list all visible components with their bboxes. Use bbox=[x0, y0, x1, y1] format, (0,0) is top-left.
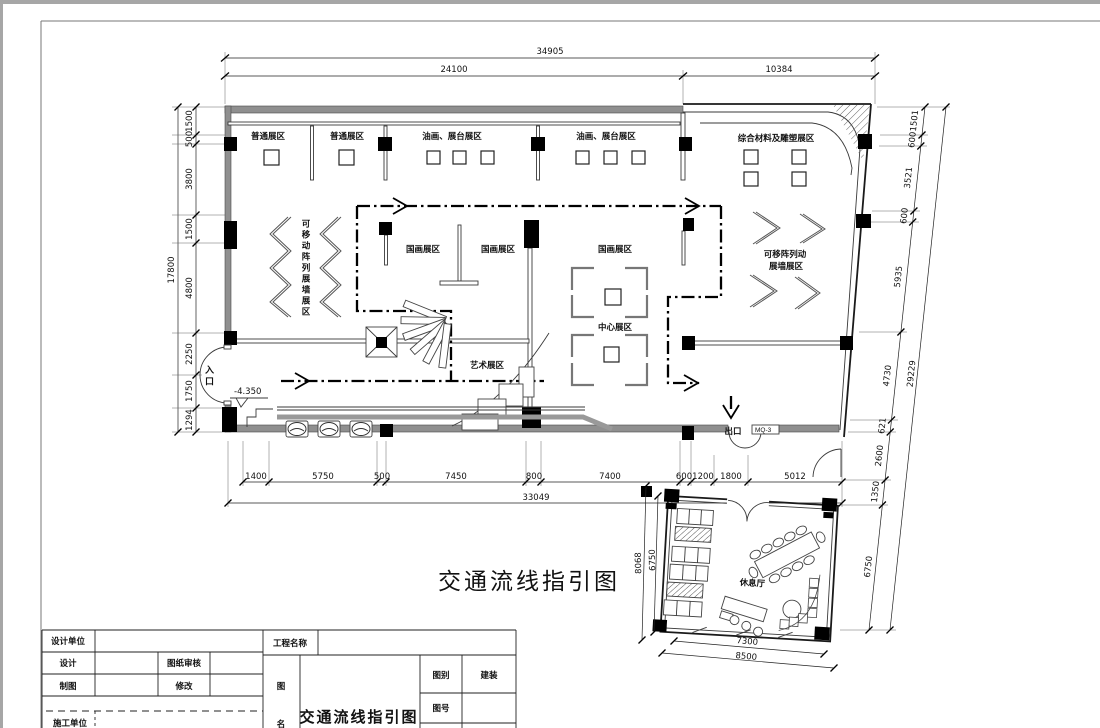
svg-text:621: 621 bbox=[877, 417, 889, 434]
svg-text:4800: 4800 bbox=[185, 277, 195, 299]
curtain-wall-tag: MQ-3 bbox=[755, 427, 772, 434]
svg-text:3521: 3521 bbox=[903, 167, 915, 190]
svg-text:5012: 5012 bbox=[784, 472, 806, 482]
room-label-lounge: 休息厅 bbox=[738, 577, 766, 589]
titleblock-category-label: 图别 bbox=[432, 670, 449, 680]
svg-text:7300: 7300 bbox=[736, 636, 758, 648]
titleblock-design: 设计 bbox=[59, 658, 77, 668]
titleblock-drawing-name-label: 图 bbox=[277, 681, 286, 691]
room-label-oil2: 油画、展台展区 bbox=[576, 131, 636, 141]
svg-text:6750: 6750 bbox=[648, 549, 658, 571]
titleblock-drawing-name-label: 名 bbox=[277, 719, 286, 728]
room-label-movable-right: 展墙展区 bbox=[768, 261, 804, 271]
room-label-guohua2: 国画展区 bbox=[481, 244, 516, 254]
titleblock-project-name: 工程名称 bbox=[273, 638, 308, 648]
drawing-sheet: 34905 24100 10384 17800 1500 500 3800 15… bbox=[0, 0, 1100, 728]
exit: 出口 MQ-3 bbox=[724, 425, 841, 477]
svg-text:3800: 3800 bbox=[185, 168, 195, 190]
svg-text:600: 600 bbox=[907, 131, 919, 148]
svg-text:7400: 7400 bbox=[599, 472, 621, 482]
room-label-art: 艺术展区 bbox=[470, 360, 505, 370]
room-labels: 普通展区 普通展区 油画、展台展区 油画、展台展区 综合材料及雕塑展区 可移动阵… bbox=[251, 131, 815, 370]
exit-label: 出口 bbox=[724, 426, 741, 436]
svg-text:800: 800 bbox=[526, 472, 542, 482]
svg-text:5750: 5750 bbox=[312, 472, 334, 482]
structural-columns bbox=[222, 134, 872, 440]
room-label-guohua3: 国画展区 bbox=[598, 244, 633, 254]
annex-lounge: 休息厅 bbox=[652, 488, 838, 641]
titleblock-review: 图纸审核 bbox=[167, 658, 202, 668]
svg-text:500: 500 bbox=[374, 472, 390, 482]
reception-desk bbox=[277, 407, 612, 437]
svg-text:1200: 1200 bbox=[692, 472, 714, 482]
floor-plan-canvas: 34905 24100 10384 17800 1500 500 3800 15… bbox=[0, 0, 1100, 728]
svg-text:2250: 2250 bbox=[185, 343, 195, 365]
svg-text:4730: 4730 bbox=[882, 365, 894, 388]
level-note: -4.350 bbox=[234, 387, 261, 397]
room-label-general2: 普通展区 bbox=[330, 131, 365, 141]
svg-text:2600: 2600 bbox=[874, 445, 886, 468]
titleblock-construction-unit: 施工单位 bbox=[53, 718, 88, 728]
room-label-guohua1: 国画展区 bbox=[406, 244, 441, 254]
entry-step bbox=[247, 409, 273, 427]
svg-text:1400: 1400 bbox=[245, 472, 267, 482]
annex-door-arc bbox=[813, 449, 841, 477]
dimension-chain-right: 1501 600 3521 600 5935 4730 621 2600 135… bbox=[840, 104, 950, 634]
exhibit-fixtures bbox=[264, 150, 825, 430]
dim-top-total: 34905 bbox=[536, 47, 563, 57]
tile-counter bbox=[779, 573, 820, 633]
title-block: 设计单位 设计 图纸审核 制图 修改 施工单位 工程名称 图 名 交通流线指引图… bbox=[42, 630, 516, 728]
annex-outer-column bbox=[641, 486, 652, 497]
stool bbox=[288, 423, 370, 436]
room-label-movable-left: 可移动阵列展墙展区 bbox=[301, 219, 311, 318]
titleblock-draft: 制图 bbox=[59, 681, 76, 691]
level-symbol bbox=[230, 398, 268, 407]
room-label-general1: 普通展区 bbox=[251, 131, 286, 141]
svg-text:6750: 6750 bbox=[863, 556, 875, 579]
svg-text:1294: 1294 bbox=[185, 409, 195, 431]
dim-left-total: 17800 bbox=[167, 256, 177, 283]
svg-text:600: 600 bbox=[899, 207, 911, 224]
corner-hatch bbox=[833, 105, 870, 161]
dim-top-seg: 10384 bbox=[765, 65, 792, 75]
svg-text:7450: 7450 bbox=[445, 472, 467, 482]
svg-text:8500: 8500 bbox=[735, 651, 757, 663]
titleblock-drawing-title: 交通流线指引图 bbox=[299, 708, 418, 726]
svg-text:1800: 1800 bbox=[720, 472, 742, 482]
svg-text:500: 500 bbox=[185, 131, 195, 147]
svg-text:1501: 1501 bbox=[909, 110, 921, 133]
titleblock-number-label: 图号 bbox=[432, 703, 450, 713]
titleblock-revise: 修改 bbox=[174, 681, 193, 691]
svg-text:1500: 1500 bbox=[185, 218, 195, 240]
pyramid-display bbox=[366, 327, 397, 357]
titleblock-design-unit: 设计单位 bbox=[51, 636, 86, 646]
room-label-center: 中心展区 bbox=[598, 322, 633, 332]
dim-bottom-total: 33049 bbox=[522, 493, 549, 503]
room-label-composite: 综合材料及雕塑展区 bbox=[738, 133, 815, 143]
dimension-chain-bottom: 1400 5750 500 7450 800 7400 600 1200 180… bbox=[225, 441, 846, 507]
titleblock-category-value: 建装 bbox=[479, 670, 498, 680]
svg-text:5935: 5935 bbox=[893, 266, 905, 289]
dimension-chain-left: 17800 1500 500 3800 1500 4800 2250 1750 … bbox=[167, 104, 226, 436]
svg-text:1350: 1350 bbox=[870, 481, 882, 504]
room-label-oil1: 油画、展台展区 bbox=[422, 131, 482, 141]
svg-text:1750: 1750 bbox=[185, 380, 195, 402]
svg-text:600: 600 bbox=[676, 472, 692, 482]
dimension-chain-top: 34905 24100 10384 bbox=[221, 47, 879, 104]
room-label-movable-right: 可移阵列动 bbox=[764, 249, 807, 259]
svg-text:8068: 8068 bbox=[634, 552, 644, 574]
page-title: 交通流线指引图 bbox=[438, 568, 620, 594]
dim-top-seg: 24100 bbox=[440, 65, 467, 75]
entry-label: 入口 bbox=[204, 365, 215, 388]
svg-text:1500: 1500 bbox=[185, 110, 195, 132]
